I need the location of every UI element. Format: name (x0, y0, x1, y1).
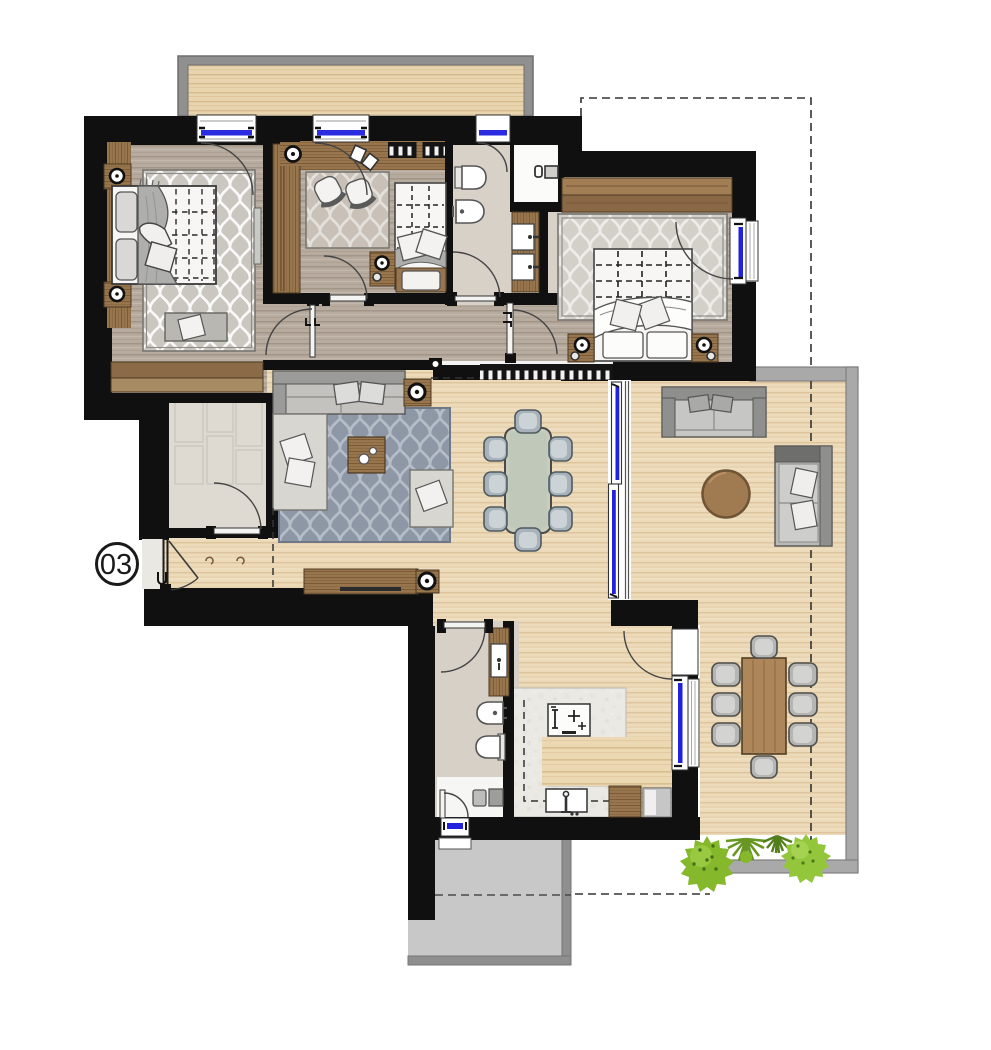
svg-text:03: 03 (100, 549, 132, 581)
